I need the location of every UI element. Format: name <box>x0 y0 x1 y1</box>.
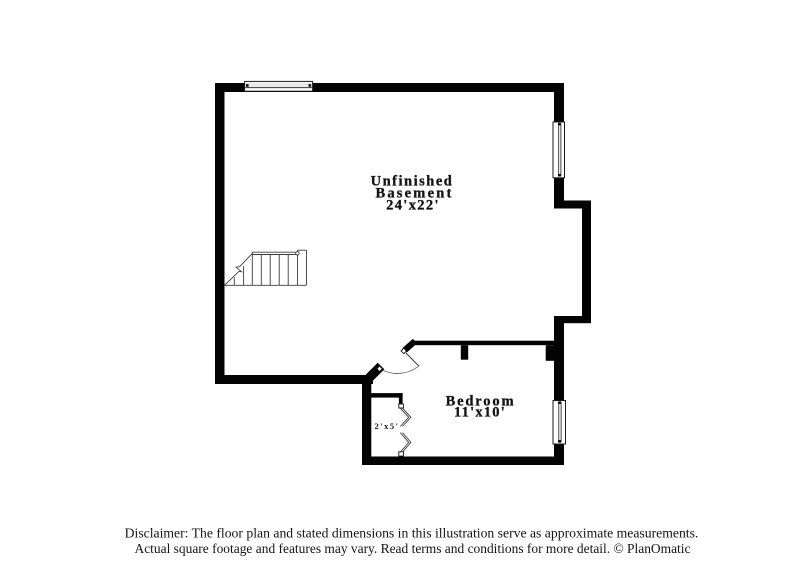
svg-text:Disclaimer: The floor plan and: Disclaimer: The floor plan and stated di… <box>125 526 699 541</box>
svg-text:11'x10': 11'x10' <box>454 405 506 421</box>
svg-text:2'x5': 2'x5' <box>375 421 400 431</box>
svg-text:Actual square footage and feat: Actual square footage and features may v… <box>135 541 691 556</box>
svg-text:24'x22': 24'x22' <box>386 197 440 213</box>
